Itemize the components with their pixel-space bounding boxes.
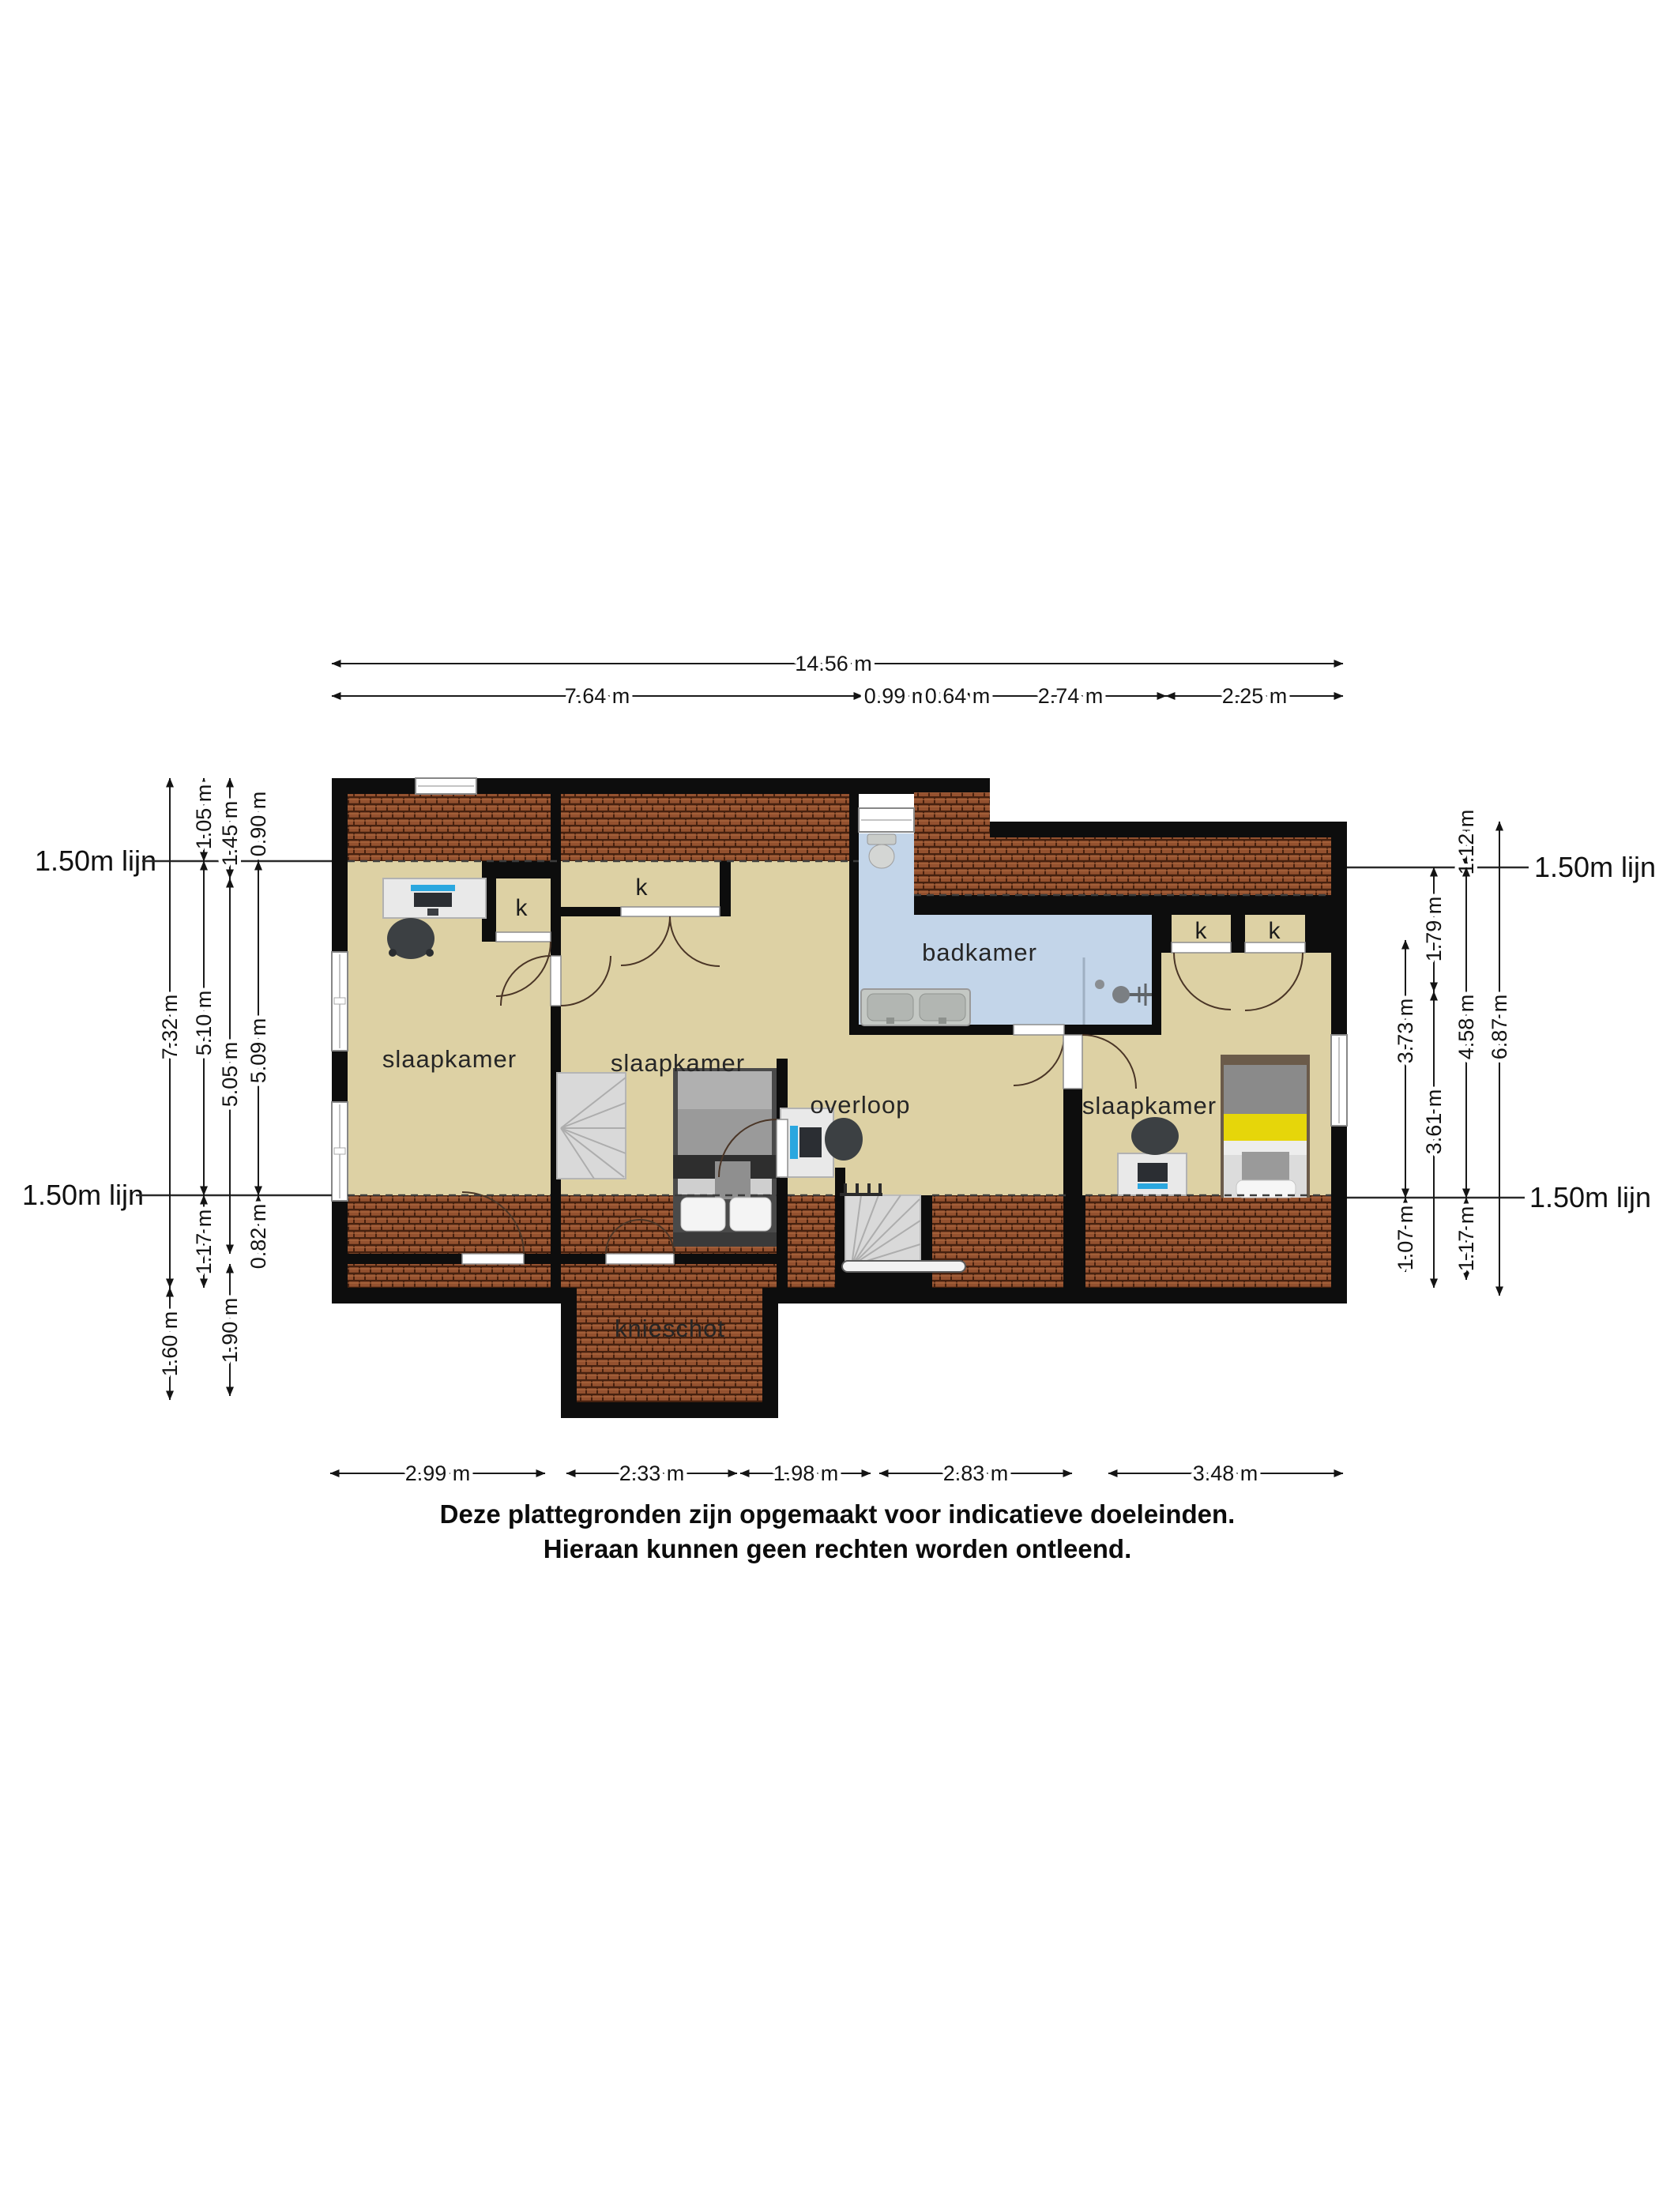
stairs-railing bbox=[842, 1261, 965, 1272]
dim-bottom-seg5: 3.48 m bbox=[1193, 1461, 1258, 1485]
monitor-accent-landing bbox=[790, 1126, 798, 1159]
wall-stairwell-right bbox=[920, 1195, 932, 1288]
wall-knee-left-b bbox=[524, 1254, 606, 1264]
dim-top-seg4: 2.74 m bbox=[1038, 684, 1104, 708]
roof-strip-top-right bbox=[914, 792, 1331, 895]
chair-wheel-icon bbox=[426, 949, 434, 957]
monitor-accent-left bbox=[411, 885, 455, 891]
dimensions-top: 14.56 m 7.64 m 0.99 m 0.64 m 2.74 m 2.25… bbox=[332, 652, 1343, 708]
shower-knob-icon bbox=[1095, 980, 1104, 989]
door-closet-left bbox=[496, 932, 551, 942]
ref-label-left-top: 1.50m lijn bbox=[35, 845, 156, 877]
dim-top-seg3: 0.64 m bbox=[925, 684, 991, 708]
window-left-2 bbox=[332, 1102, 348, 1201]
wall-knee-right bbox=[914, 895, 1331, 915]
wall-closet-mid-c bbox=[720, 861, 731, 907]
dim-left-090: 0.90 m bbox=[246, 792, 270, 857]
wall-closet-mid-a bbox=[561, 907, 621, 916]
label-landing: overloop bbox=[811, 1091, 911, 1119]
footer-disclaimer: Deze plattegronden zijn opgemaakt voor i… bbox=[440, 1499, 1236, 1563]
label-bedroom-left: slaapkamer bbox=[382, 1045, 517, 1073]
dim-right-687: 6.87 m bbox=[1488, 995, 1511, 1060]
ref-label-right-top: 1.50m lijn bbox=[1534, 851, 1656, 883]
label-knieschot: knieschot bbox=[615, 1315, 725, 1342]
window-right bbox=[1331, 1035, 1347, 1126]
roof-strip-bottom-left-b bbox=[348, 1264, 561, 1288]
dim-bottom-seg4: 2.83 m bbox=[943, 1461, 1009, 1485]
roof-strip-bottom-left-a bbox=[348, 1195, 551, 1254]
wall-knee-left-c bbox=[674, 1254, 777, 1264]
wall-closet-divider bbox=[1231, 915, 1245, 953]
dim-left-510: 5.10 m bbox=[192, 991, 216, 1056]
monitor-landing bbox=[799, 1127, 822, 1157]
dimensions-right: 3.73 m 1.07 m 1.79 m 3.61 m 1.12 m 4.58 … bbox=[1394, 810, 1511, 1296]
dim-left-505: 5.05 m bbox=[218, 1042, 242, 1108]
dim-bottom-seg2: 2.33 m bbox=[619, 1461, 685, 1485]
roof-strip-bottom-right bbox=[1085, 1195, 1331, 1288]
chair-right-bedroom bbox=[1131, 1117, 1179, 1155]
sink-left bbox=[867, 994, 913, 1021]
bed-double-duvet-top bbox=[678, 1071, 772, 1109]
dim-left-509: 5.09 m bbox=[246, 1018, 270, 1084]
label-closet-left: k bbox=[516, 895, 529, 921]
floorplan-page: { "plan": { "room_labels": { "bedroom": … bbox=[0, 0, 1659, 2212]
dim-right-112: 1.12 m bbox=[1454, 810, 1478, 875]
roof-strip-bottom-landing bbox=[932, 1195, 1066, 1288]
dim-bottom-seg1: 2.99 m bbox=[405, 1461, 471, 1485]
window-dormer bbox=[859, 808, 914, 832]
bed-pillow bbox=[681, 1198, 725, 1231]
dim-top-seg1: 7.64 m bbox=[565, 684, 630, 708]
dim-right-373: 3.73 m bbox=[1394, 999, 1417, 1064]
dimensions-bottom: 2.99 m 2.33 m 1.98 m 2.83 m 3.48 m bbox=[330, 1461, 1343, 1485]
window-top bbox=[416, 778, 476, 794]
toilet-tank bbox=[867, 834, 896, 845]
dim-left-732: 7.32 m bbox=[158, 995, 182, 1060]
wall-closet-mid-b bbox=[720, 907, 731, 916]
dim-right-361: 3.61 m bbox=[1422, 1089, 1446, 1155]
shower-head-icon bbox=[1112, 986, 1130, 1003]
wall-knee-left-a bbox=[348, 1254, 462, 1264]
dim-right-117: 1.17 m bbox=[1454, 1206, 1478, 1272]
floor-plan-canvas: 14.56 m 7.64 m 0.99 m 0.64 m 2.74 m 2.25… bbox=[0, 0, 1659, 2212]
door-bathroom bbox=[1014, 1025, 1064, 1035]
label-closet-r1: k bbox=[1195, 918, 1208, 944]
dim-right-107: 1.07 m bbox=[1394, 1206, 1417, 1271]
tap-icon bbox=[886, 1018, 894, 1024]
bed-single-accent bbox=[1224, 1114, 1307, 1141]
dim-top-seg5: 2.25 m bbox=[1222, 684, 1288, 708]
dim-left-160: 1.60 m bbox=[158, 1311, 182, 1377]
door-bedrooms-divider bbox=[551, 956, 561, 1006]
dim-left-105: 1.05 m bbox=[192, 784, 216, 850]
wall-closet-r2-right bbox=[1305, 915, 1331, 953]
roof-strip-bottom-mid-c bbox=[788, 1195, 835, 1288]
wall-bathroom-left bbox=[849, 794, 859, 1033]
dim-right-458: 4.58 m bbox=[1454, 995, 1478, 1060]
door-bedroom-middle bbox=[777, 1119, 788, 1177]
roof-strip-top-left bbox=[348, 794, 859, 861]
dim-top-seg2: 0.99 m bbox=[864, 684, 930, 708]
dimensions-left: 7.32 m 1.60 m 1.05 m 5.10 m 1.17 m 1.45 … bbox=[158, 778, 270, 1400]
window-left-1 bbox=[332, 952, 348, 1051]
label-closet-middle: k bbox=[636, 875, 649, 901]
wall-closet-r1-left bbox=[1161, 915, 1172, 953]
monitor-left bbox=[414, 893, 452, 907]
dim-top-total: 14.56 m bbox=[795, 652, 872, 675]
dim-bottom-seg3: 1.98 m bbox=[773, 1461, 839, 1485]
wall-closet-left-top bbox=[482, 861, 561, 878]
label-bedroom-middle: slaapkamer bbox=[611, 1049, 745, 1077]
bed-pillow bbox=[730, 1198, 771, 1231]
ref-label-right-bottom: 1.50m lijn bbox=[1529, 1181, 1651, 1213]
dim-left-190: 1.90 m bbox=[218, 1298, 242, 1364]
wall-landing-bedroom bbox=[1063, 1089, 1082, 1288]
door-knieschot bbox=[606, 1254, 674, 1264]
wall-bathroom-right bbox=[1152, 895, 1161, 1033]
dim-right-179: 1.79 m bbox=[1422, 897, 1446, 962]
laptop-right-bedroom bbox=[1138, 1163, 1168, 1182]
laptop-accent-right bbox=[1138, 1183, 1168, 1189]
disclaimer-line2: Hieraan kunnen geen rechten worden ontle… bbox=[544, 1534, 1131, 1563]
wall-bathroom-bottom-b bbox=[1064, 1025, 1161, 1035]
door-bedroom-right bbox=[1063, 1035, 1082, 1089]
label-closet-r2: k bbox=[1269, 918, 1281, 944]
monitor-stand-left bbox=[427, 908, 438, 916]
toilet-bowl bbox=[869, 845, 894, 868]
chair-wheel-icon bbox=[389, 949, 397, 957]
dim-left-117: 1.17 m bbox=[192, 1209, 216, 1275]
dim-left-082: 0.82 m bbox=[246, 1204, 270, 1270]
door-knee-wall-left bbox=[462, 1254, 524, 1264]
label-bathroom: badkamer bbox=[922, 939, 1037, 966]
ref-label-left-bottom: 1.50m lijn bbox=[22, 1179, 144, 1211]
sink-right bbox=[920, 994, 965, 1021]
bed-single-duvet bbox=[1224, 1065, 1307, 1114]
door-closet-middle bbox=[621, 907, 720, 916]
label-bedroom-right: slaapkamer bbox=[1082, 1092, 1217, 1119]
disclaimer-line1: Deze plattegronden zijn opgemaakt voor i… bbox=[440, 1499, 1236, 1529]
dim-left-145: 1.45 m bbox=[218, 801, 242, 867]
chair-landing bbox=[825, 1118, 863, 1161]
tap-icon bbox=[939, 1018, 946, 1024]
bed-double-footboard bbox=[673, 1232, 777, 1247]
